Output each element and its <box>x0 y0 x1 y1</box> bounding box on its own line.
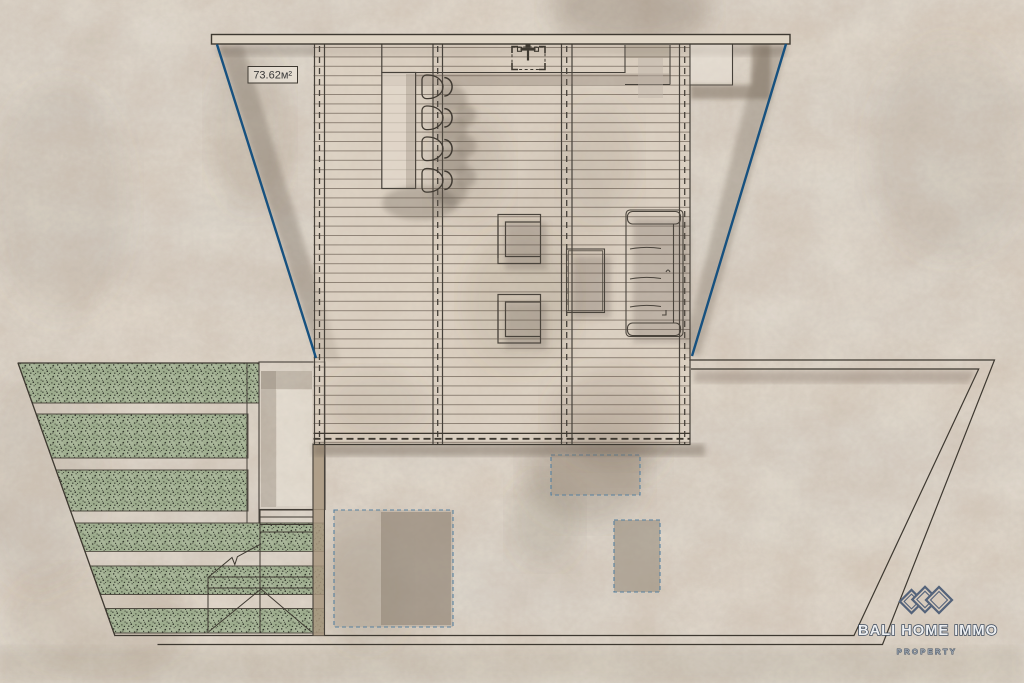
svg-text:BALI HOME IMMO: BALI HOME IMMO <box>858 623 998 639</box>
svg-text:PROPERTY: PROPERTY <box>897 647 957 656</box>
svg-text:73.62м²: 73.62м² <box>253 70 292 82</box>
